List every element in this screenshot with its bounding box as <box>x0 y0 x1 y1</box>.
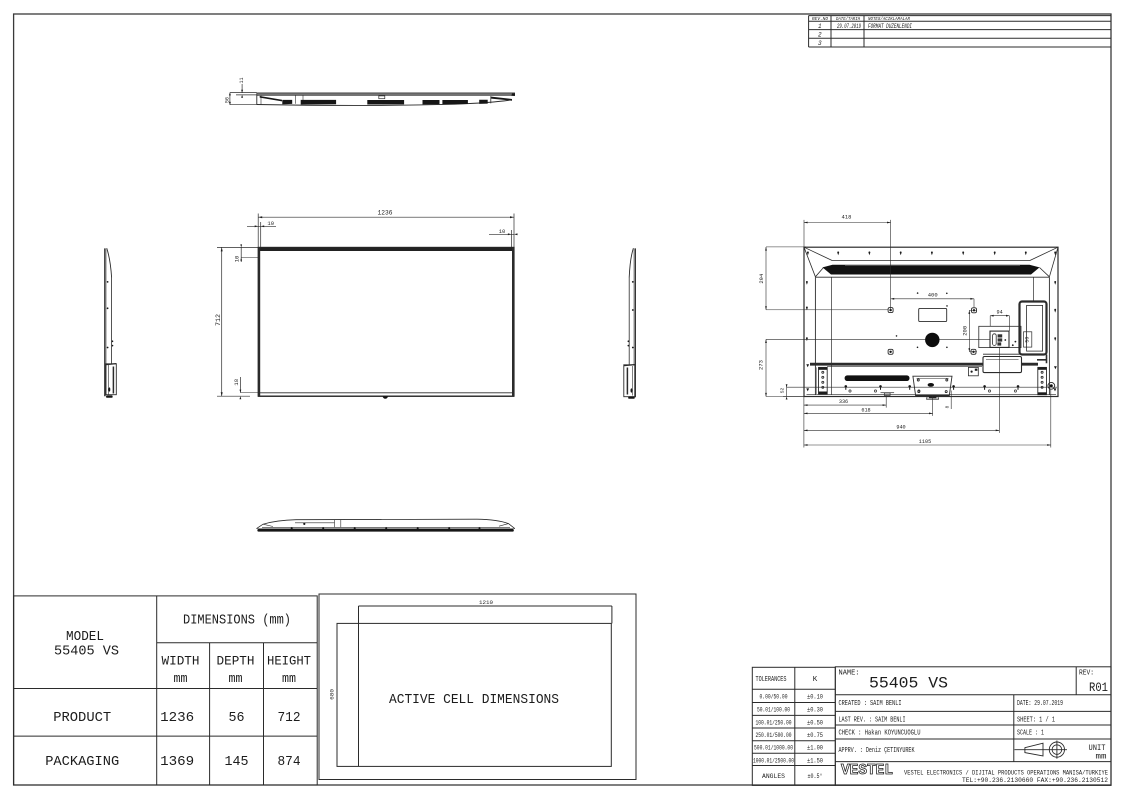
svg-text:56: 56 <box>224 97 230 103</box>
svg-text:56: 56 <box>229 710 245 726</box>
svg-text:1236: 1236 <box>160 710 194 726</box>
svg-text:10: 10 <box>267 220 274 227</box>
svg-text:VESTEL ELECTRONICS / DIJITAL P: VESTEL ELECTRONICS / DIJITAL PRODUCTS OP… <box>904 770 1108 777</box>
svg-text:94: 94 <box>996 309 1002 315</box>
svg-text:1369: 1369 <box>160 754 194 770</box>
svg-text:NAME:: NAME: <box>839 670 860 678</box>
svg-text:11: 11 <box>239 77 245 83</box>
svg-text:10: 10 <box>499 228 506 235</box>
svg-text:200: 200 <box>961 326 968 336</box>
svg-text:mm: mm <box>174 671 188 686</box>
svg-text:DATE/TARIH: DATE/TARIH <box>836 16 860 22</box>
svg-text:1000.01/2500.00: 1000.01/2500.00 <box>753 757 794 764</box>
svg-text:APPRV. : Deniz ÇETINYUREK: APPRV. : Deniz ÇETINYUREK <box>839 747 916 755</box>
svg-text:0.00/50.00: 0.00/50.00 <box>760 694 788 701</box>
svg-text:18: 18 <box>233 379 240 386</box>
svg-text:1236: 1236 <box>378 210 393 217</box>
svg-text:ACTIVE CELL DIMENSIONS: ACTIVE CELL DIMENSIONS <box>389 693 559 708</box>
svg-text:FORMAT DUZENLENDI: FORMAT DUZENLENDI <box>868 23 912 30</box>
svg-text:SCALE : 1: SCALE : 1 <box>1017 730 1044 738</box>
svg-text:680: 680 <box>329 689 336 700</box>
svg-text:940: 940 <box>896 425 905 431</box>
svg-text:8: 8 <box>946 405 951 408</box>
svg-text:50: 50 <box>1025 337 1031 343</box>
svg-text:±0.5°: ±0.5° <box>808 772 823 780</box>
svg-text:±0.10: ±0.10 <box>807 694 823 701</box>
svg-text:ANGLES: ANGLES <box>762 773 785 780</box>
svg-text:712: 712 <box>278 710 301 726</box>
svg-text:500.01/1000.00: 500.01/1000.00 <box>754 745 793 752</box>
svg-text:±0.50: ±0.50 <box>807 719 823 726</box>
svg-text:52: 52 <box>780 388 786 394</box>
svg-text:REV.NO: REV.NO <box>812 16 828 22</box>
svg-text:HEIGHT: HEIGHT <box>267 654 311 669</box>
svg-text:29.07.2019: 29.07.2019 <box>837 23 861 30</box>
svg-text:PACKAGING: PACKAGING <box>45 754 119 770</box>
svg-text:K: K <box>813 676 818 684</box>
svg-text:55405 VS: 55405 VS <box>869 675 948 693</box>
svg-text:NOTES/ACIKLAMALAR: NOTES/ACIKLAMALAR <box>868 16 910 22</box>
svg-text:LAST REV. : SAIM BENLI: LAST REV. : SAIM BENLI <box>839 717 906 725</box>
svg-text:PRODUCT: PRODUCT <box>53 710 111 726</box>
svg-text:250.01/500.00: 250.01/500.00 <box>756 732 792 739</box>
svg-text:55405 VS: 55405 VS <box>54 644 119 660</box>
svg-text:CHECK : Hakan KOYUNCUOGLU: CHECK : Hakan KOYUNCUOGLU <box>839 730 921 738</box>
svg-text:REV:: REV: <box>1079 670 1094 678</box>
svg-text:DEPTH: DEPTH <box>217 654 255 669</box>
svg-text:VESTEL: VESTEL <box>841 763 893 779</box>
svg-text:10: 10 <box>234 256 241 263</box>
svg-text:±1.00: ±1.00 <box>807 745 823 752</box>
svg-text:400: 400 <box>928 292 938 299</box>
svg-text:2: 2 <box>818 31 822 38</box>
svg-text:±1.50: ±1.50 <box>807 757 823 764</box>
svg-text:3: 3 <box>818 40 822 47</box>
svg-text:418: 418 <box>842 213 852 220</box>
svg-text:±0.75: ±0.75 <box>807 732 823 739</box>
svg-text:618: 618 <box>861 408 870 414</box>
svg-text:UNIT: UNIT <box>1089 743 1106 753</box>
svg-text:273: 273 <box>758 360 765 370</box>
svg-text:1105: 1105 <box>919 439 931 445</box>
svg-text:TEL:+90.236.2130660 FAX:+90.23: TEL:+90.236.2130660 FAX:+90.236.2130512 <box>962 777 1108 784</box>
svg-text:145: 145 <box>225 754 249 770</box>
svg-text:SHEET: 1 / 1: SHEET: 1 / 1 <box>1017 717 1055 725</box>
svg-text:CREATED : SAIM BENLI: CREATED : SAIM BENLI <box>839 700 902 708</box>
svg-text:DATE: 29.07.2019: DATE: 29.07.2019 <box>1017 700 1063 708</box>
svg-text:TOLERANCES: TOLERANCES <box>756 676 787 684</box>
svg-text:mm: mm <box>282 671 296 686</box>
svg-text:DIMENSIONS (mm): DIMENSIONS (mm) <box>183 613 291 629</box>
svg-text:±0.30: ±0.30 <box>807 707 823 714</box>
svg-text:712: 712 <box>215 314 222 326</box>
svg-text:mm: mm <box>1096 753 1107 762</box>
svg-text:1210: 1210 <box>479 599 493 606</box>
svg-text:294: 294 <box>758 273 765 284</box>
svg-text:mm: mm <box>229 671 243 686</box>
svg-text:100.01/250.00: 100.01/250.00 <box>756 719 792 726</box>
svg-text:336: 336 <box>839 399 848 405</box>
svg-text:874: 874 <box>278 754 301 770</box>
svg-text:50.01/100.00: 50.01/100.00 <box>757 707 790 714</box>
svg-text:1: 1 <box>818 23 822 30</box>
svg-text:WIDTH: WIDTH <box>162 654 200 669</box>
svg-text:R01: R01 <box>1089 681 1108 695</box>
